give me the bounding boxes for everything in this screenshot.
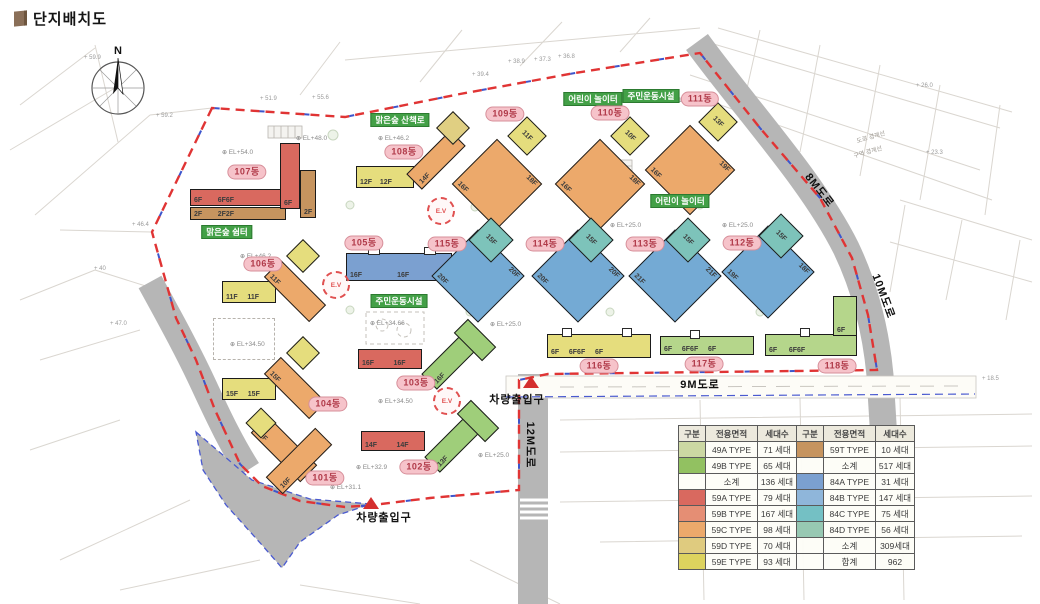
- building-117-part: 6F 6F6F 6F: [660, 336, 754, 355]
- ev-marker: E.V: [433, 387, 461, 415]
- building-103-part: 16F 16F: [358, 349, 422, 369]
- building-badge-111: 111동: [681, 92, 719, 107]
- elevation-label: EL+46.2: [378, 135, 409, 142]
- legend-cell: 65 세대: [758, 458, 797, 474]
- building-badge-109: 109동: [485, 107, 524, 122]
- legend-swatch: [679, 458, 706, 474]
- building-badge-118: 118동: [818, 359, 857, 374]
- building-badge-115: 115동: [428, 237, 467, 252]
- legend-cell: 59B TYPE: [706, 506, 758, 522]
- legend-row: 49B TYPE65 세대소계517 세대: [679, 458, 915, 474]
- building-badge-112: 112동: [723, 236, 762, 251]
- road-label-12m: 12M도로: [523, 422, 539, 469]
- legend-swatch: [797, 442, 824, 458]
- legend-cell: 309세대: [876, 538, 915, 554]
- building-badge-117: 117동: [685, 357, 724, 372]
- building-badge-102: 102동: [399, 460, 438, 475]
- legend-swatch: [797, 522, 824, 538]
- legend-cell: 31 세대: [876, 474, 915, 490]
- legend-swatch: [797, 474, 824, 490]
- legend-swatch: [679, 474, 706, 490]
- legend-cell: 49A TYPE: [706, 442, 758, 458]
- building-badge-104: 104동: [308, 397, 347, 412]
- legend-cell: 70 세대: [758, 538, 797, 554]
- entrance-label-1: 차량출입구: [356, 509, 412, 525]
- legend-cell: 93 세대: [758, 554, 797, 570]
- building-badge-116: 116동: [580, 359, 619, 374]
- legend-swatch: [679, 506, 706, 522]
- building-badge-113: 113동: [626, 237, 665, 252]
- page-title: 단지배치도: [33, 8, 107, 29]
- building-108-part: 12F 12F: [356, 166, 414, 188]
- facility-label-exercise-2: 주민운동시설: [371, 294, 428, 308]
- legend-swatch: [797, 490, 824, 506]
- legend-header: 전용면적: [706, 426, 758, 442]
- elevation-label: EL+32.9: [356, 464, 387, 471]
- building-badge-110: 110동: [591, 106, 630, 121]
- building-106-part: 11F 11F: [222, 281, 276, 303]
- entrance-arrow-icon: [523, 376, 539, 388]
- survey-mark: 55.6: [312, 95, 329, 101]
- survey-mark: 23.3: [926, 150, 943, 156]
- legend-cell: 합계: [824, 554, 876, 570]
- legend-cell: 소계: [824, 458, 876, 474]
- legend-row: 소계136 세대84A TYPE31 세대: [679, 474, 915, 490]
- survey-mark: 46.4: [132, 222, 149, 228]
- building-102-part: 14F 14F: [361, 431, 425, 451]
- elevation-label: EL+34.50: [378, 398, 413, 405]
- elevation-label: EL+25.0: [478, 452, 509, 459]
- survey-mark: 39.4: [472, 72, 489, 78]
- stair-core: [562, 328, 572, 337]
- legend-cell: 98 세대: [758, 522, 797, 538]
- legend-swatch: [797, 458, 824, 474]
- legend-cell: 84A TYPE: [824, 474, 876, 490]
- building-badge-103: 103동: [396, 376, 435, 391]
- legend-swatch: [679, 442, 706, 458]
- legend-cell: 56 세대: [876, 522, 915, 538]
- legend-header: 구분: [679, 426, 706, 442]
- legend-row: 59C TYPE98 세대84D TYPE56 세대: [679, 522, 915, 538]
- legend-header: 전용면적: [824, 426, 876, 442]
- building-118-part: 6F: [833, 296, 857, 336]
- legend-cell: 136 세대: [758, 474, 797, 490]
- building-107-part: 2F: [300, 170, 316, 218]
- legend-cell: 59A TYPE: [706, 490, 758, 506]
- building-badge-114: 114동: [526, 237, 565, 252]
- legend-cell: 75 세대: [876, 506, 915, 522]
- legend-cell: 소계: [706, 474, 758, 490]
- legend-row: 59B TYPE167 세대84C TYPE75 세대: [679, 506, 915, 522]
- building-116-part: 6F 6F6F 6F: [547, 334, 651, 358]
- legend-cell: 소계: [824, 538, 876, 554]
- legend-row: 59D TYPE70 세대소계309세대: [679, 538, 915, 554]
- building-badge-107: 107동: [227, 165, 266, 180]
- legend-row: 49A TYPE71 세대59T TYPE10 세대: [679, 442, 915, 458]
- facility-label-exercise-1: 주민운동시설: [623, 89, 680, 103]
- legend-cell: 10 세대: [876, 442, 915, 458]
- ev-marker: E.V: [427, 197, 455, 225]
- legend-cell: 84C TYPE: [824, 506, 876, 522]
- elevation-label: EL+25.0: [722, 222, 753, 229]
- legend-swatch: [797, 538, 824, 554]
- survey-mark: 40: [94, 266, 106, 272]
- facility-label-trail: 맑은숲 산책로: [370, 113, 429, 127]
- building-107-part: 6F: [280, 143, 300, 209]
- legend-swatch: [679, 538, 706, 554]
- legend-cell: 71 세대: [758, 442, 797, 458]
- building-badge-106: 106동: [243, 257, 282, 272]
- legend-cell: 49B TYPE: [706, 458, 758, 474]
- building-104-part: 15F 15F: [222, 378, 276, 400]
- legend-cell: 147 세대: [876, 490, 915, 506]
- elevation-label: EL+48.0: [296, 135, 327, 142]
- survey-mark: 59.2: [156, 113, 173, 119]
- building-118-part: 6F 6F6F: [765, 334, 857, 356]
- survey-mark: 47.0: [110, 321, 127, 327]
- legend: 구분 전용면적 세대수 구분 전용면적 세대수 49A TYPE71 세대59T…: [678, 425, 910, 570]
- legend-header-row: 구분 전용면적 세대수 구분 전용면적 세대수: [679, 426, 915, 442]
- title-bullet-icon: [14, 10, 27, 26]
- site-plan-page: N 단지배치도 6F 6F6F 2F 2F2F 6F 2F 12F 12F 14…: [0, 0, 1040, 604]
- stair-core: [690, 330, 700, 339]
- legend-swatch: [797, 554, 824, 570]
- stair-core: [800, 328, 810, 337]
- facility-label-playground-1: 어린이 놀이터: [563, 92, 622, 106]
- ghost-building-outline: [213, 318, 275, 360]
- elevation-label: EL+54.0: [222, 149, 253, 156]
- title-row: 단지배치도: [14, 8, 107, 29]
- facility-label-rest-area: 맑은숲 쉼터: [201, 225, 252, 239]
- building-badge-105: 105동: [344, 236, 383, 251]
- elevation-label: EL+34.50: [230, 341, 265, 348]
- survey-mark: 18.5: [982, 376, 999, 382]
- legend-swatch: [797, 506, 824, 522]
- legend-cell: 84D TYPE: [824, 522, 876, 538]
- entrance-arrow-icon: [363, 497, 379, 509]
- playground-pad: [366, 312, 424, 344]
- building-badge-108: 108동: [384, 145, 423, 160]
- elevation-label: EL+25.0: [490, 321, 521, 328]
- survey-mark: 37.3: [534, 57, 551, 63]
- legend-header: 구분: [797, 426, 824, 442]
- elevation-label: EL+25.0: [610, 222, 641, 229]
- legend-header: 세대수: [758, 426, 797, 442]
- survey-mark: 36.8: [558, 54, 575, 60]
- legend-cell: 84B TYPE: [824, 490, 876, 506]
- elevation-label: EL+34.66: [370, 320, 405, 327]
- legend-cell: 59D TYPE: [706, 538, 758, 554]
- legend-swatch: [679, 522, 706, 538]
- building-107-part: 6F 6F6F: [190, 189, 286, 206]
- legend-header: 세대수: [876, 426, 915, 442]
- legend-row: 59A TYPE79 세대84B TYPE147 세대: [679, 490, 915, 506]
- legend-swatch: [679, 554, 706, 570]
- legend-cell: 59T TYPE: [824, 442, 876, 458]
- ev-marker: E.V: [322, 271, 350, 299]
- legend-cell: 79 세대: [758, 490, 797, 506]
- legend-cell: 167 세대: [758, 506, 797, 522]
- facility-label-playground-2: 어린이 놀이터: [650, 194, 709, 208]
- compass-n-label: N: [114, 45, 122, 57]
- legend-body: 49A TYPE71 세대59T TYPE10 세대49B TYPE65 세대소…: [679, 442, 915, 570]
- road-label-9m: 9M도로: [680, 376, 720, 392]
- legend-cell: 517 세대: [876, 458, 915, 474]
- survey-mark: 51.9: [260, 96, 277, 102]
- building-107-part: 2F 2F2F: [190, 207, 286, 220]
- legend-table: 구분 전용면적 세대수 구분 전용면적 세대수 49A TYPE71 세대59T…: [678, 425, 915, 570]
- legend-cell: 59C TYPE: [706, 522, 758, 538]
- legend-cell: 59E TYPE: [706, 554, 758, 570]
- legend-swatch: [679, 490, 706, 506]
- building-badge-101: 101동: [305, 471, 344, 486]
- entrance-label-2: 차량출입구: [489, 391, 545, 407]
- legend-cell: 962: [876, 554, 915, 570]
- legend-row: 59E TYPE93 세대합계962: [679, 554, 915, 570]
- stair-core: [622, 328, 632, 337]
- survey-mark: 38.9: [508, 59, 525, 65]
- survey-mark: 59.9: [84, 55, 101, 61]
- survey-mark: 26.0: [916, 83, 933, 89]
